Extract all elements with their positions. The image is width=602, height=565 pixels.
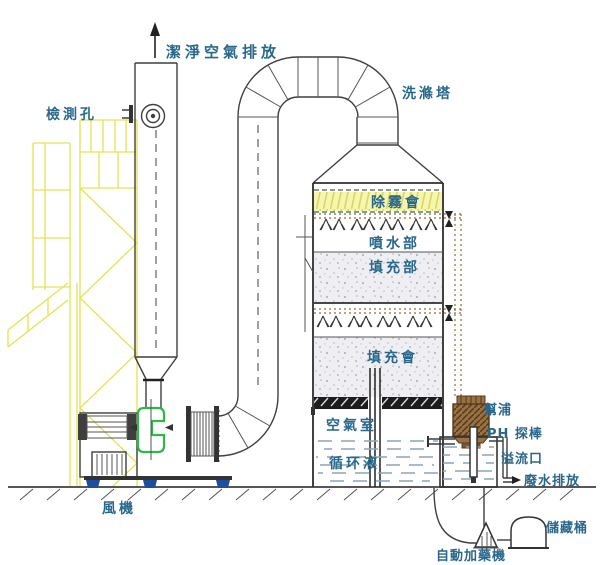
spray-section-2 [314, 309, 461, 327]
storage-barrel-label: 儲藏桶 [545, 520, 588, 536]
valve-icon [445, 211, 453, 321]
fan-unit [78, 399, 232, 488]
wastewater-arrow [512, 476, 521, 484]
exhaust-stack [122, 22, 177, 408]
left-feed-pipe [296, 215, 313, 332]
packing-section-2 [314, 337, 442, 397]
ground [8, 487, 596, 500]
dosing-pump [473, 523, 499, 548]
fan-inlet-cone [129, 399, 173, 460]
ph-probe-label: PH 探棒 [487, 426, 543, 442]
overflow-label: 溢流口 [501, 451, 543, 467]
inspection-port-label: 檢測孔 [46, 106, 97, 123]
fan-motor [92, 452, 126, 477]
clean-air-arrow [150, 22, 160, 58]
auto-doser-label: 自動加藥機 [436, 548, 506, 564]
air-chamber-label: 空氣室 [326, 417, 377, 434]
spray-section-label: 噴水部 [369, 235, 420, 252]
packing-section-label: 填充部 [369, 259, 420, 276]
storage-barrel-shape [508, 517, 549, 548]
underground-piping [434, 487, 549, 548]
pump-label: 幫浦 [484, 402, 512, 418]
clean-air-label: 潔淨空氣排放 [166, 43, 280, 61]
circulating-liquid-label: 循环液 [329, 455, 380, 472]
ph-probe-device [470, 427, 477, 483]
demister-label: 除霧會 [371, 194, 422, 211]
process-diagram: 潔淨空氣排放 檢測孔 洗滌塔 除霧會 噴水部 填充部 填充會 空氣室 循环液 幫… [0, 0, 602, 565]
scrubber-tower-label: 洗滌塔 [402, 85, 453, 102]
inspection-port-icon [142, 105, 165, 128]
packing-layer-label: 填充會 [367, 349, 418, 366]
wastewater-label: 廢水排放 [524, 473, 580, 489]
flex-connector [186, 406, 219, 462]
fan-label: 風機 [102, 500, 136, 517]
spray-section-1 [314, 214, 461, 230]
diagram-canvas: 潔淨空氣排放 檢測孔 洗滌塔 除霧會 噴水部 填充部 填充會 空氣室 循环液 幫… [0, 0, 602, 565]
support-grate [314, 397, 442, 409]
